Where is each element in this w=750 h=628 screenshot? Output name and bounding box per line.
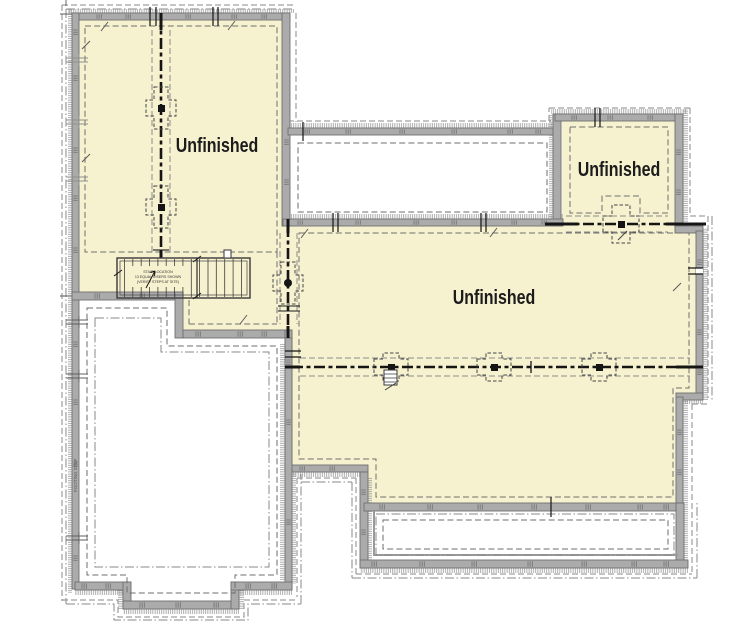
svg-text:FOOTING STEP: FOOTING STEP xyxy=(73,458,78,492)
svg-text:Unfinished: Unfinished xyxy=(453,285,536,308)
svg-text:STAIR LOCATION: STAIR LOCATION xyxy=(143,270,173,274)
svg-text:(VERIFY STEPS AT SITE): (VERIFY STEPS AT SITE) xyxy=(137,280,179,284)
svg-text:13 EQUAL RISERS SHOWN: 13 EQUAL RISERS SHOWN xyxy=(135,275,182,279)
svg-text:Unfinished: Unfinished xyxy=(176,133,259,156)
svg-text:Unfinished: Unfinished xyxy=(578,157,661,180)
